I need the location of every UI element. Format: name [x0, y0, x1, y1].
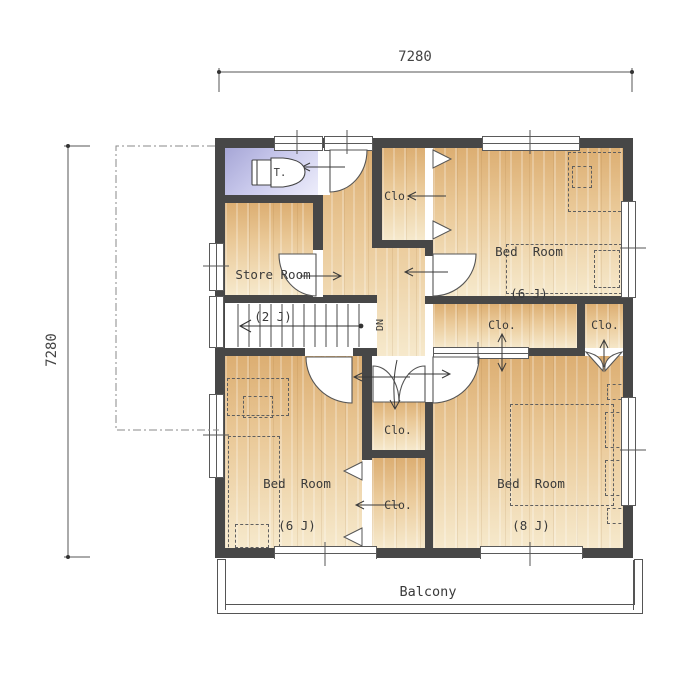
plan-linework: [0, 0, 680, 680]
bedroom-name: Bed Room: [247, 477, 347, 491]
dimension-left-label: 7280: [45, 310, 59, 390]
bedroom-bottom-right-label: Bed Room (8 J): [481, 449, 581, 561]
bedroom-name: Bed Room: [481, 477, 581, 491]
closet-hall-wide-label: Clo.: [478, 319, 526, 332]
store-room-size: (2 J): [223, 310, 323, 324]
store-room-name: Store Room: [223, 268, 323, 282]
roof-outline: [116, 146, 219, 430]
bedroom-size: (8 J): [481, 519, 581, 533]
dimension-top-label: 7280: [375, 50, 455, 64]
balcony-label: Balcony: [378, 585, 478, 599]
bedroom-size: (6 J): [247, 519, 347, 533]
stairs-dn-label: DN: [374, 313, 388, 337]
bifold-door-icons: [344, 150, 451, 546]
bedroom-size: (6 J): [479, 287, 579, 301]
closet-center-lower-label: Clo.: [374, 499, 422, 512]
closet-center-upper-label: Clo.: [374, 424, 422, 437]
floor-plan-canvas: 7280 7280 T. Store Room (2 J) Bed Room (…: [0, 0, 680, 680]
bedroom-bottom-left-label: Bed Room (6 J): [247, 449, 347, 561]
bedroom-name: Bed Room: [479, 245, 579, 259]
closet-hall-narrow-label: Clo.: [581, 319, 629, 332]
store-room-label: Store Room (2 J): [223, 240, 323, 352]
toilet-label: T.: [270, 166, 290, 180]
bedroom-top-right-label: Bed Room (6 J): [479, 217, 579, 329]
closet-upper-hall-label: Clo.: [374, 190, 422, 203]
